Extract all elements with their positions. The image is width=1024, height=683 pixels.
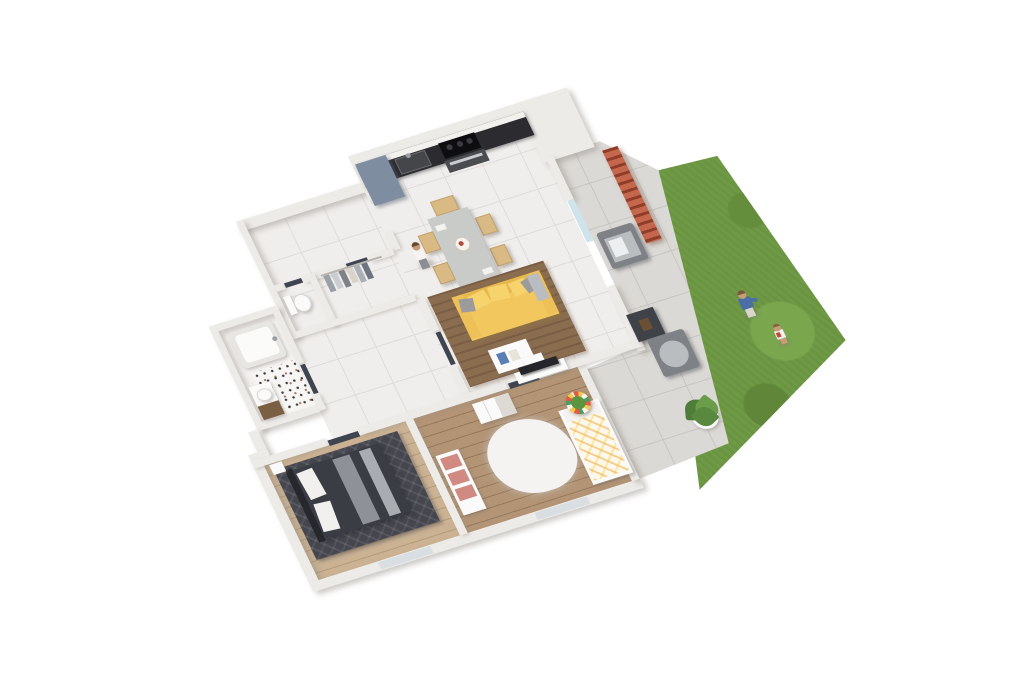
outdoor-side-table-inset	[638, 318, 653, 332]
person-arm	[749, 298, 758, 302]
sofa-pillow-gray	[458, 298, 475, 313]
outdoor-armchair-cushion	[655, 337, 694, 371]
